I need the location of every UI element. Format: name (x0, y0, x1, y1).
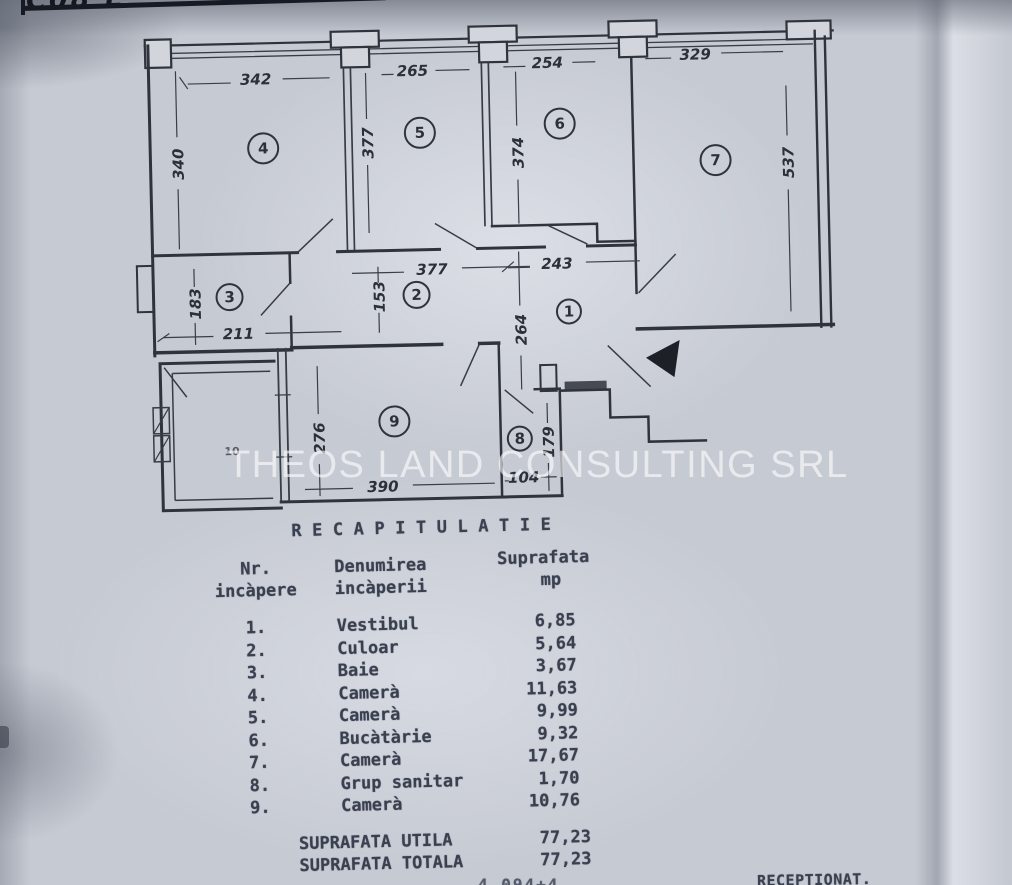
svg-text:7: 7 (710, 151, 721, 169)
dimension-lines (151, 51, 795, 499)
svg-text:9: 9 (389, 412, 400, 430)
dim-bath-width: 211 (223, 325, 255, 344)
dimension-labels: 342 265 254 329 340 377 374 537 377 243 … (167, 43, 805, 500)
svg-text:4: 4 (258, 139, 269, 157)
room-label-6: 6 (544, 108, 575, 139)
scanned-floor-plan-document: { "page": { "corner_note": "C08 E", "wat… (0, 0, 1012, 885)
dim-vestibul-width: 243 (541, 254, 573, 273)
dim-bath-height: 183 (186, 288, 205, 320)
svg-text:2: 2 (411, 286, 422, 304)
dim-vestibul-height: 264 (512, 314, 531, 346)
column-header-suprafata: Suprafata mp (497, 546, 590, 592)
svg-text:6: 6 (554, 114, 565, 132)
room-label-1: 1 (557, 299, 582, 324)
room-label-4: 4 (248, 133, 279, 164)
recap-table: RECAPITULATIE Nr. incàpere Denumirea inc… (213, 510, 602, 885)
svg-text:1: 1 (564, 302, 575, 320)
table-rows: 1.Vestibul6,85 2.Culoar5,64 3.Baie3,67 4… (216, 610, 591, 821)
recap-title: RECAPITULATIE (291, 515, 561, 542)
bottom-partial-line: 4,094+4 (478, 875, 559, 885)
dim-room5-width: 265 (397, 62, 429, 81)
room-label-9: 9 (379, 406, 410, 437)
dim-corridor-width: 377 (416, 260, 448, 279)
column-header-nr: Nr. incàpere (214, 557, 297, 603)
dim-room7-height: 537 (779, 146, 798, 178)
svg-text:3: 3 (224, 288, 235, 306)
dim-corridor-height: 153 (370, 281, 389, 313)
room-label-7: 7 (700, 145, 731, 176)
dim-room7-width: 329 (679, 45, 711, 64)
watermark: THEOS LAND CONSULTING SRL (227, 444, 849, 487)
receptionat-label: RECEPTIONAT. (757, 870, 872, 885)
room-label-3: 3 (216, 284, 243, 311)
table-totals: SUPRAFATA UTILA77,23 SUPRAFATA TOTALA77,… (299, 827, 592, 878)
room-label-5: 5 (405, 117, 436, 148)
dim-room6-width: 254 (531, 54, 563, 73)
dim-room4-width: 342 (240, 70, 272, 89)
column-header-denumirea: Denumirea incàperii (334, 554, 427, 600)
dim-room4-height: 340 (169, 148, 188, 180)
dim-room5-height: 377 (359, 127, 378, 159)
dim-room6-height: 374 (509, 137, 528, 169)
svg-text:5: 5 (414, 124, 425, 142)
room-label-2: 2 (403, 282, 430, 309)
entrance-arrow (646, 340, 681, 378)
